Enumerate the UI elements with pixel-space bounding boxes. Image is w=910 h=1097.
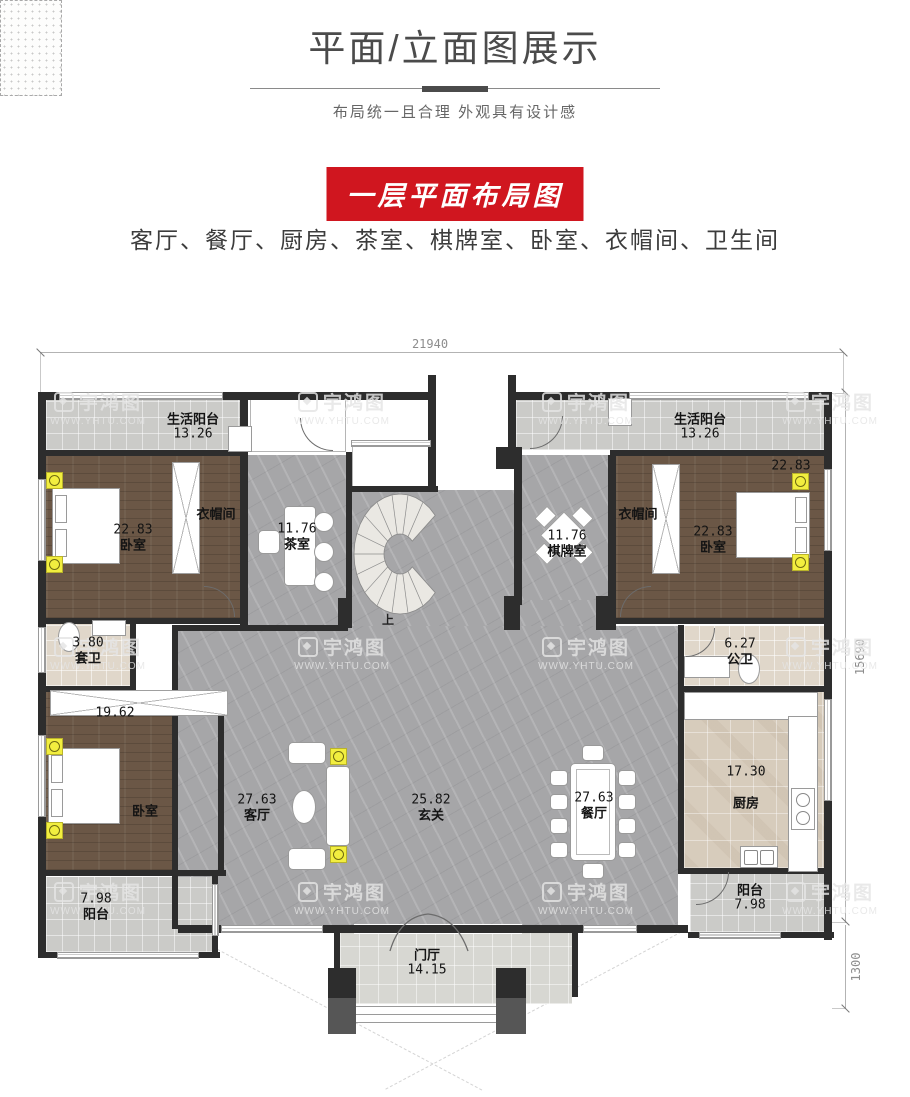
porch-step — [356, 1006, 496, 1007]
pillow — [55, 529, 67, 557]
pillow — [51, 755, 63, 783]
window — [700, 933, 780, 938]
room-label-balcony-top-left: 生活阳台 13.26 — [167, 412, 219, 443]
room-label-balcony-bottom-left: 7.98 阳台 — [80, 892, 111, 923]
sink-bowl — [744, 850, 758, 865]
kitchen-sink — [740, 846, 778, 868]
room-balcony-bottom-left — [46, 877, 212, 952]
header: 平面/立面图展示 布局统一且合理 外观具有设计感 — [0, 0, 910, 122]
room-label-public-bath: 6.27 公卫 — [724, 637, 755, 668]
stairwell-bay — [352, 440, 432, 488]
dining-chair — [550, 794, 568, 810]
room-label-bedroom-top-left: 22.83 卧室 — [113, 523, 152, 554]
window — [630, 393, 808, 399]
wall — [38, 870, 226, 876]
title-divider — [250, 86, 660, 92]
dining-chair — [618, 770, 636, 786]
spotlight — [330, 748, 347, 765]
bathroom-sink — [684, 656, 730, 678]
room-label-cloak-right: 衣帽间 — [618, 506, 657, 521]
room-label-cloak-left: 衣帽间 — [196, 506, 235, 521]
room-label-living: 27.63 客厅 — [237, 793, 276, 824]
room-label-dining: 27.63 餐厅 — [574, 791, 613, 822]
room-label-foyer: 25.82 玄关 — [411, 793, 450, 824]
wall — [172, 625, 178, 929]
room-label-balcony-bottom-right: 阳台 7.98 — [734, 883, 765, 914]
pillow — [795, 527, 807, 553]
tea-chair — [314, 512, 334, 532]
sink-bowl — [760, 850, 774, 865]
extension-line — [832, 393, 846, 394]
window — [58, 953, 198, 958]
spotlight-ring — [49, 741, 60, 752]
dimension-top: 21940 — [406, 337, 454, 351]
wall — [178, 625, 348, 631]
bed — [736, 492, 810, 558]
dining-chair — [618, 842, 636, 858]
window — [352, 441, 430, 446]
dimension-line-top — [40, 352, 844, 353]
room-label-balcony-top-right: 生活阳台 13.26 — [674, 412, 726, 443]
spotlight — [46, 738, 63, 755]
wall — [610, 450, 832, 456]
porch-step — [356, 1014, 496, 1015]
porch-pier — [496, 998, 526, 1034]
bed — [48, 748, 120, 824]
spotlight-ring — [795, 476, 806, 487]
spotlight-ring — [795, 557, 806, 568]
room-label-chess: 11.76 棋牌室 — [547, 529, 586, 560]
washer — [228, 426, 252, 452]
room-label-ensuite: 3.80 套卫 — [72, 636, 103, 667]
room-label-tea: 11.76 茶室 — [277, 522, 316, 553]
dining-chair — [582, 863, 604, 879]
extension-line — [40, 353, 41, 393]
window — [222, 926, 322, 932]
window — [39, 628, 45, 672]
wardrobe — [50, 690, 228, 716]
spotlight — [46, 822, 63, 839]
pillow — [51, 789, 63, 817]
window — [39, 480, 45, 560]
wall — [508, 375, 516, 458]
page: { "header": { "title": "平面/立面图展示", "subt… — [0, 0, 910, 1097]
dimension-line-corner — [845, 925, 846, 1009]
room-list: 客厅、餐厅、厨房、茶室、棋牌室、卧室、衣帽间、卫生间 — [0, 221, 910, 255]
wall — [596, 596, 616, 630]
coffee-table — [292, 790, 316, 824]
pillow — [55, 495, 67, 523]
dimension-line-right — [845, 393, 846, 923]
spotlight — [330, 846, 347, 863]
room-balcony-top-right — [516, 400, 824, 450]
stairs-up-label: 上 — [382, 613, 394, 627]
spotlight — [46, 556, 63, 573]
window — [825, 470, 831, 550]
spotlight — [792, 473, 809, 490]
window — [60, 393, 222, 399]
spotlight-ring — [49, 475, 60, 486]
spotlight — [46, 472, 63, 489]
divider-accent — [422, 86, 488, 92]
spotlight — [792, 554, 809, 571]
dimension-corner: 1300 — [849, 937, 863, 997]
room-label-kitchen: 17.30 厨房 — [726, 765, 765, 812]
wall — [614, 618, 832, 624]
bathroom-sink — [92, 620, 126, 636]
wall — [38, 450, 244, 456]
tea-chair — [314, 572, 334, 592]
armchair — [288, 742, 326, 764]
burner — [796, 793, 810, 807]
porch-step — [356, 1022, 496, 1023]
room-label-bedroom-bottom-left: 卧室 — [132, 803, 158, 818]
extension-line — [832, 922, 846, 923]
tea-chair — [314, 542, 334, 562]
porch-pier — [328, 998, 356, 1034]
dining-chair — [550, 842, 568, 858]
spotlight-ring — [49, 559, 60, 570]
spotlight-ring — [333, 751, 344, 762]
room-label-bedroom-top-right: 22.83 卧室 — [693, 525, 732, 556]
dimension-right: 15690 — [853, 627, 867, 687]
spotlight-ring — [49, 825, 60, 836]
window — [584, 926, 636, 932]
spotlight-ring — [333, 849, 344, 860]
window — [825, 700, 831, 800]
sofa — [326, 766, 350, 846]
extension-line — [843, 353, 844, 393]
dining-chair — [582, 745, 604, 761]
room-label-bedroom-top-right-corner: 22.83 — [771, 458, 810, 473]
room-label-bedroom-bottom-left-area: 19.62 — [95, 705, 134, 720]
section-banner: 一层平面布局图 — [327, 167, 584, 221]
page-subtitle: 布局统一且合理 外观具有设计感 — [0, 101, 910, 122]
dining-chair — [618, 818, 636, 834]
stove — [791, 788, 815, 830]
window — [39, 736, 45, 816]
wall — [428, 375, 436, 488]
wall — [504, 596, 520, 630]
window — [213, 885, 218, 935]
dining-chair — [550, 818, 568, 834]
burner — [796, 811, 810, 825]
page-title: 平面/立面图展示 — [0, 18, 910, 72]
wall — [572, 933, 578, 997]
dining-chair — [618, 794, 636, 810]
staircase — [350, 490, 442, 622]
wall — [496, 968, 526, 998]
bed — [52, 488, 120, 564]
wall — [328, 968, 356, 998]
dining-chair — [550, 770, 568, 786]
armchair — [288, 848, 326, 870]
wall — [130, 620, 136, 690]
pillow — [795, 497, 807, 523]
wall — [218, 692, 224, 872]
room-label-porch: 门厅 14.15 — [407, 948, 446, 979]
washer — [608, 398, 632, 426]
